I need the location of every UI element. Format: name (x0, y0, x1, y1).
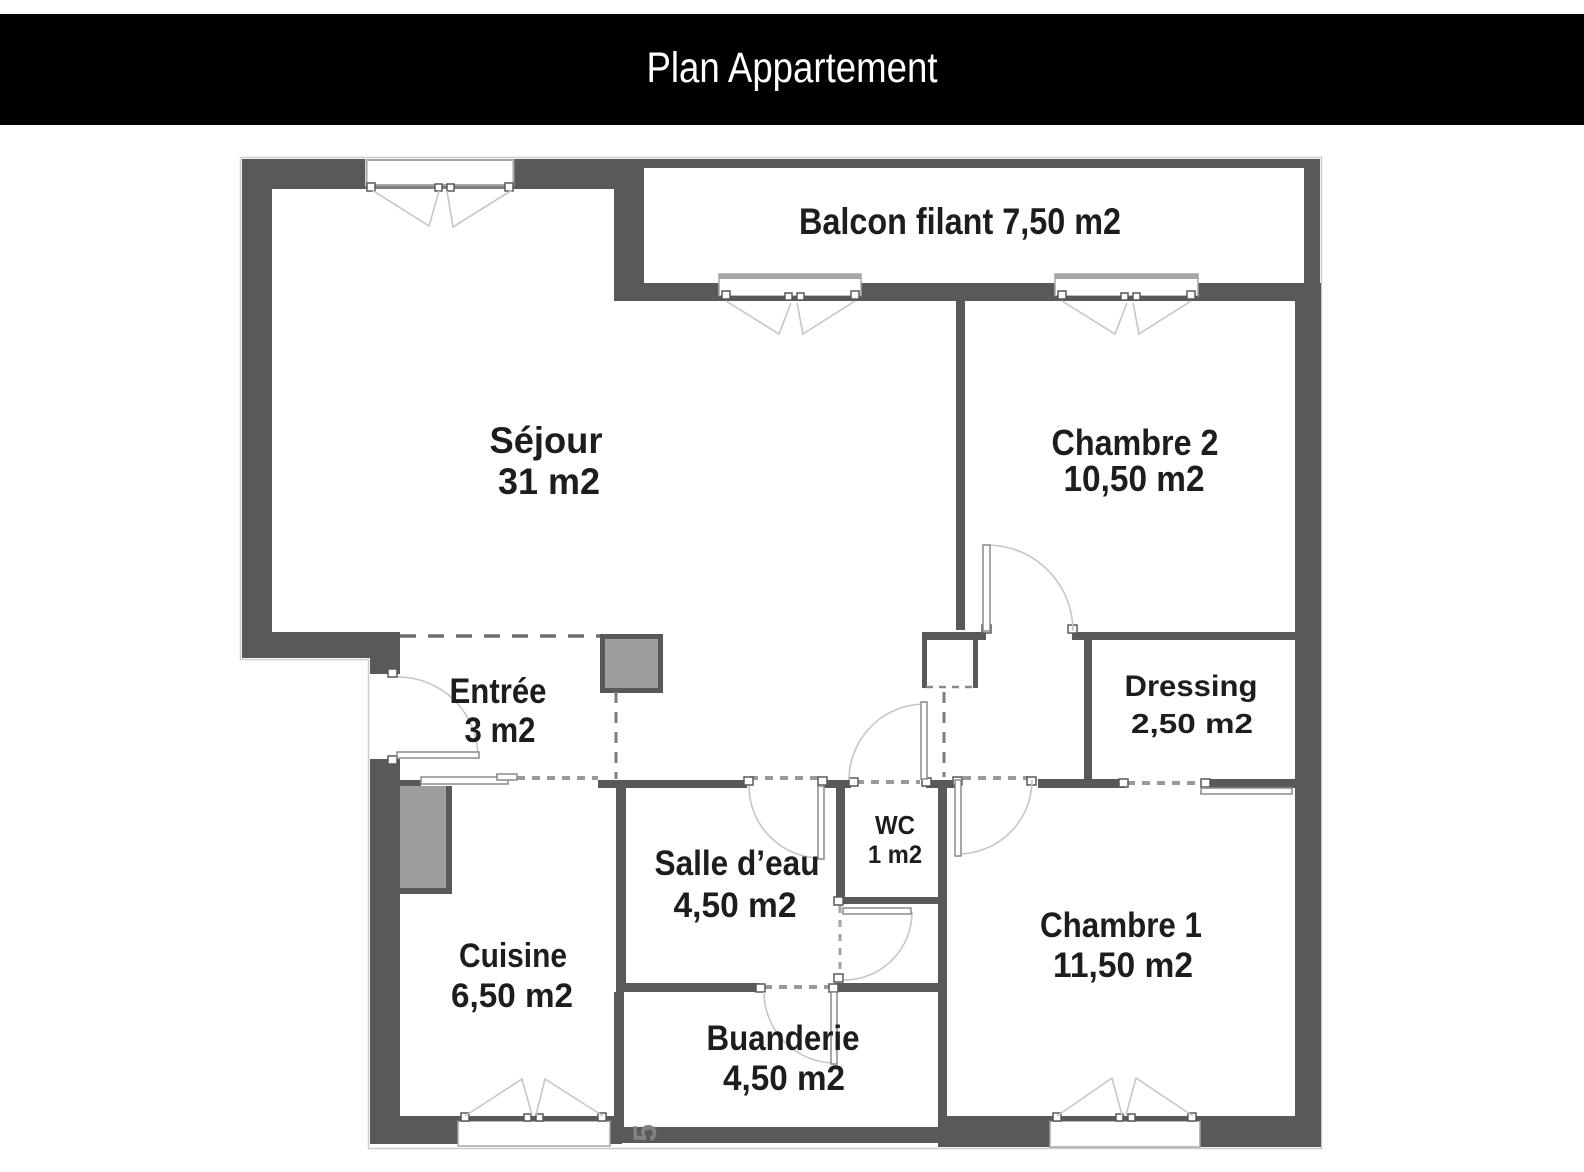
svg-text:4,50 m2: 4,50 m2 (723, 1059, 845, 1098)
svg-text:WC: WC (875, 810, 915, 840)
svg-text:Dressing: Dressing (1125, 670, 1258, 703)
svg-text:Cuisine: Cuisine (459, 937, 567, 975)
svg-text:Salle d’eau: Salle d’eau (655, 844, 820, 883)
svg-text:Séjour: Séjour (490, 420, 603, 461)
svg-text:3 m2: 3 m2 (465, 711, 536, 750)
svg-text:10,50 m2: 10,50 m2 (1064, 458, 1205, 499)
svg-text:2,50 m2: 2,50 m2 (1131, 708, 1253, 739)
svg-text:Chambre 2: Chambre 2 (1052, 422, 1219, 463)
svg-text:Buanderie: Buanderie (707, 1019, 860, 1058)
svg-text:Plan Appartement: Plan Appartement (647, 44, 938, 92)
svg-text:Entrée: Entrée (450, 672, 547, 711)
svg-text:11,50 m2: 11,50 m2 (1053, 946, 1193, 985)
svg-text:Balcon filant 7,50 m2: Balcon filant 7,50 m2 (799, 201, 1121, 242)
svg-text:1 m2: 1 m2 (868, 841, 922, 869)
svg-text:Chambre 1: Chambre 1 (1040, 906, 1202, 945)
svg-text:6,50 m2: 6,50 m2 (451, 977, 573, 1015)
svg-text:4,50 m2: 4,50 m2 (674, 886, 797, 925)
svg-text:31 m2: 31 m2 (498, 461, 600, 502)
svg-text:5: 5 (627, 1124, 663, 1142)
